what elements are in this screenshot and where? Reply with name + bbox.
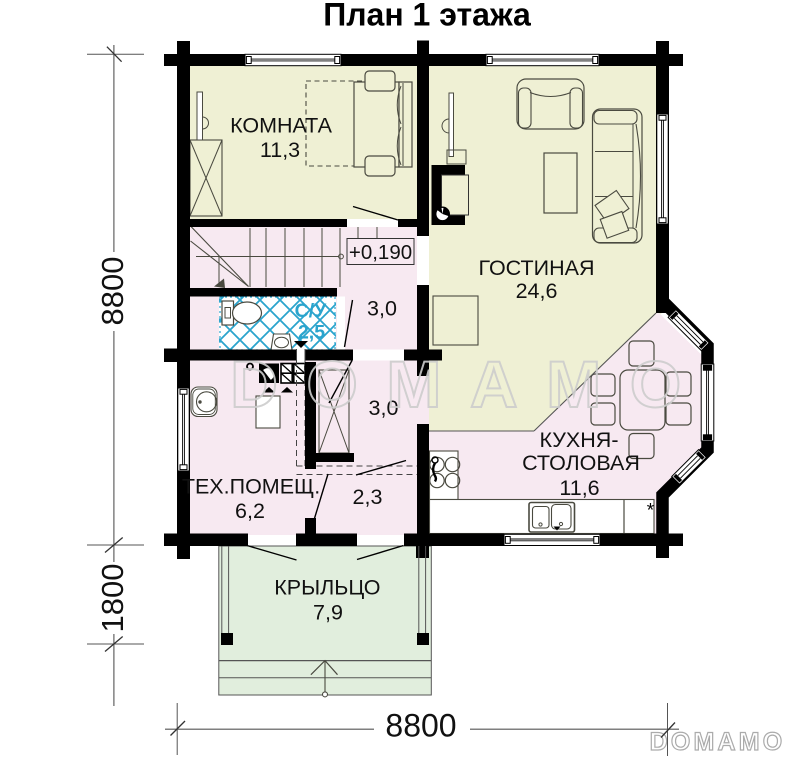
svg-text:11,6: 11,6: [559, 476, 599, 500]
svg-text:СТОЛОВАЯ: СТОЛОВАЯ: [522, 451, 640, 475]
svg-text:7,9: 7,9: [313, 601, 343, 625]
svg-text:План 1 этажа: План 1 этажа: [323, 0, 531, 33]
svg-text:2,5: 2,5: [298, 322, 325, 344]
svg-text:8800: 8800: [95, 257, 130, 326]
svg-text:DOMAMO: DOMAMO: [230, 347, 710, 421]
svg-text:КУХНЯ-: КУХНЯ-: [540, 428, 619, 452]
svg-text:ГОСТИНАЯ: ГОСТИНАЯ: [479, 256, 595, 280]
svg-text:8800: 8800: [385, 708, 456, 744]
svg-text:*: *: [647, 501, 655, 522]
svg-text:6,2: 6,2: [235, 499, 265, 523]
svg-text:ТЕХ.ПОМЕЩ.: ТЕХ.ПОМЕЩ.: [182, 475, 320, 499]
svg-text:КОМНАТА: КОМНАТА: [230, 114, 333, 138]
svg-text:3,0: 3,0: [367, 297, 397, 321]
svg-text:DOMAMO: DOMAMO: [650, 728, 786, 756]
svg-text:С/У: С/У: [295, 300, 328, 322]
svg-text:2,3: 2,3: [353, 485, 383, 509]
svg-text:+0,190: +0,190: [349, 241, 412, 264]
svg-text:КРЫЛЬЦО: КРЫЛЬЦО: [274, 576, 380, 600]
svg-text:11,3: 11,3: [260, 138, 300, 162]
svg-text:1800: 1800: [95, 564, 130, 633]
svg-text:24,6: 24,6: [516, 279, 558, 303]
